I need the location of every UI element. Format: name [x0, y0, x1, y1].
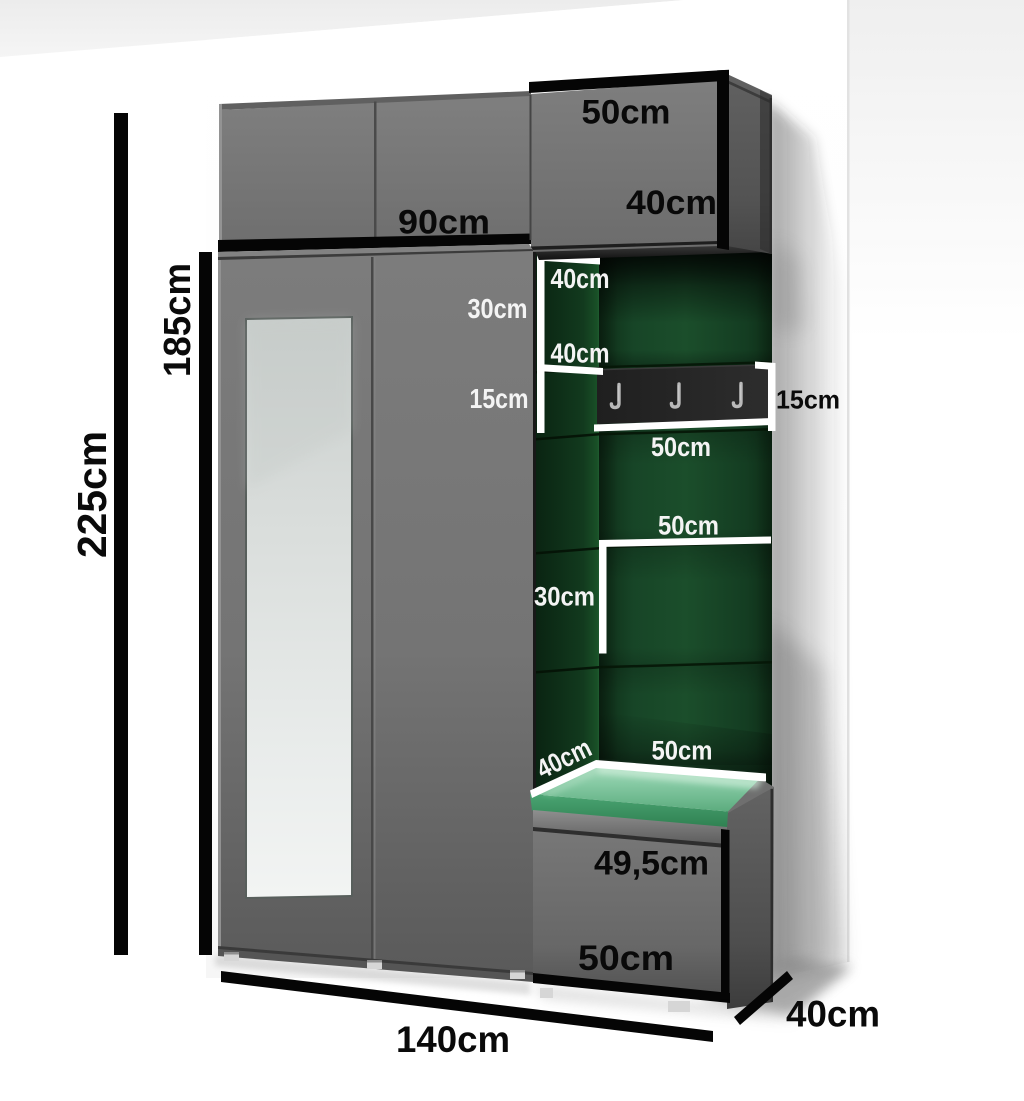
svg-text:225cm: 225cm: [69, 431, 115, 558]
svg-text:50cm: 50cm: [658, 511, 719, 541]
svg-text:40cm: 40cm: [551, 263, 610, 294]
svg-text:40cm: 40cm: [786, 994, 880, 1035]
svg-text:49,5cm: 49,5cm: [594, 845, 709, 883]
svg-text:90cm: 90cm: [398, 204, 490, 242]
svg-text:50cm: 50cm: [652, 736, 713, 766]
svg-text:50cm: 50cm: [651, 432, 711, 462]
svg-text:15cm: 15cm: [776, 385, 840, 415]
svg-text:140cm: 140cm: [396, 1019, 510, 1060]
svg-text:50cm: 50cm: [578, 939, 674, 978]
svg-text:30cm: 30cm: [534, 582, 595, 612]
svg-text:50cm: 50cm: [582, 94, 671, 132]
svg-text:40cm: 40cm: [626, 184, 717, 222]
svg-text:15cm: 15cm: [470, 383, 529, 414]
svg-text:185cm: 185cm: [157, 263, 199, 377]
svg-text:30cm: 30cm: [468, 293, 528, 324]
svg-text:40cm: 40cm: [551, 338, 610, 369]
